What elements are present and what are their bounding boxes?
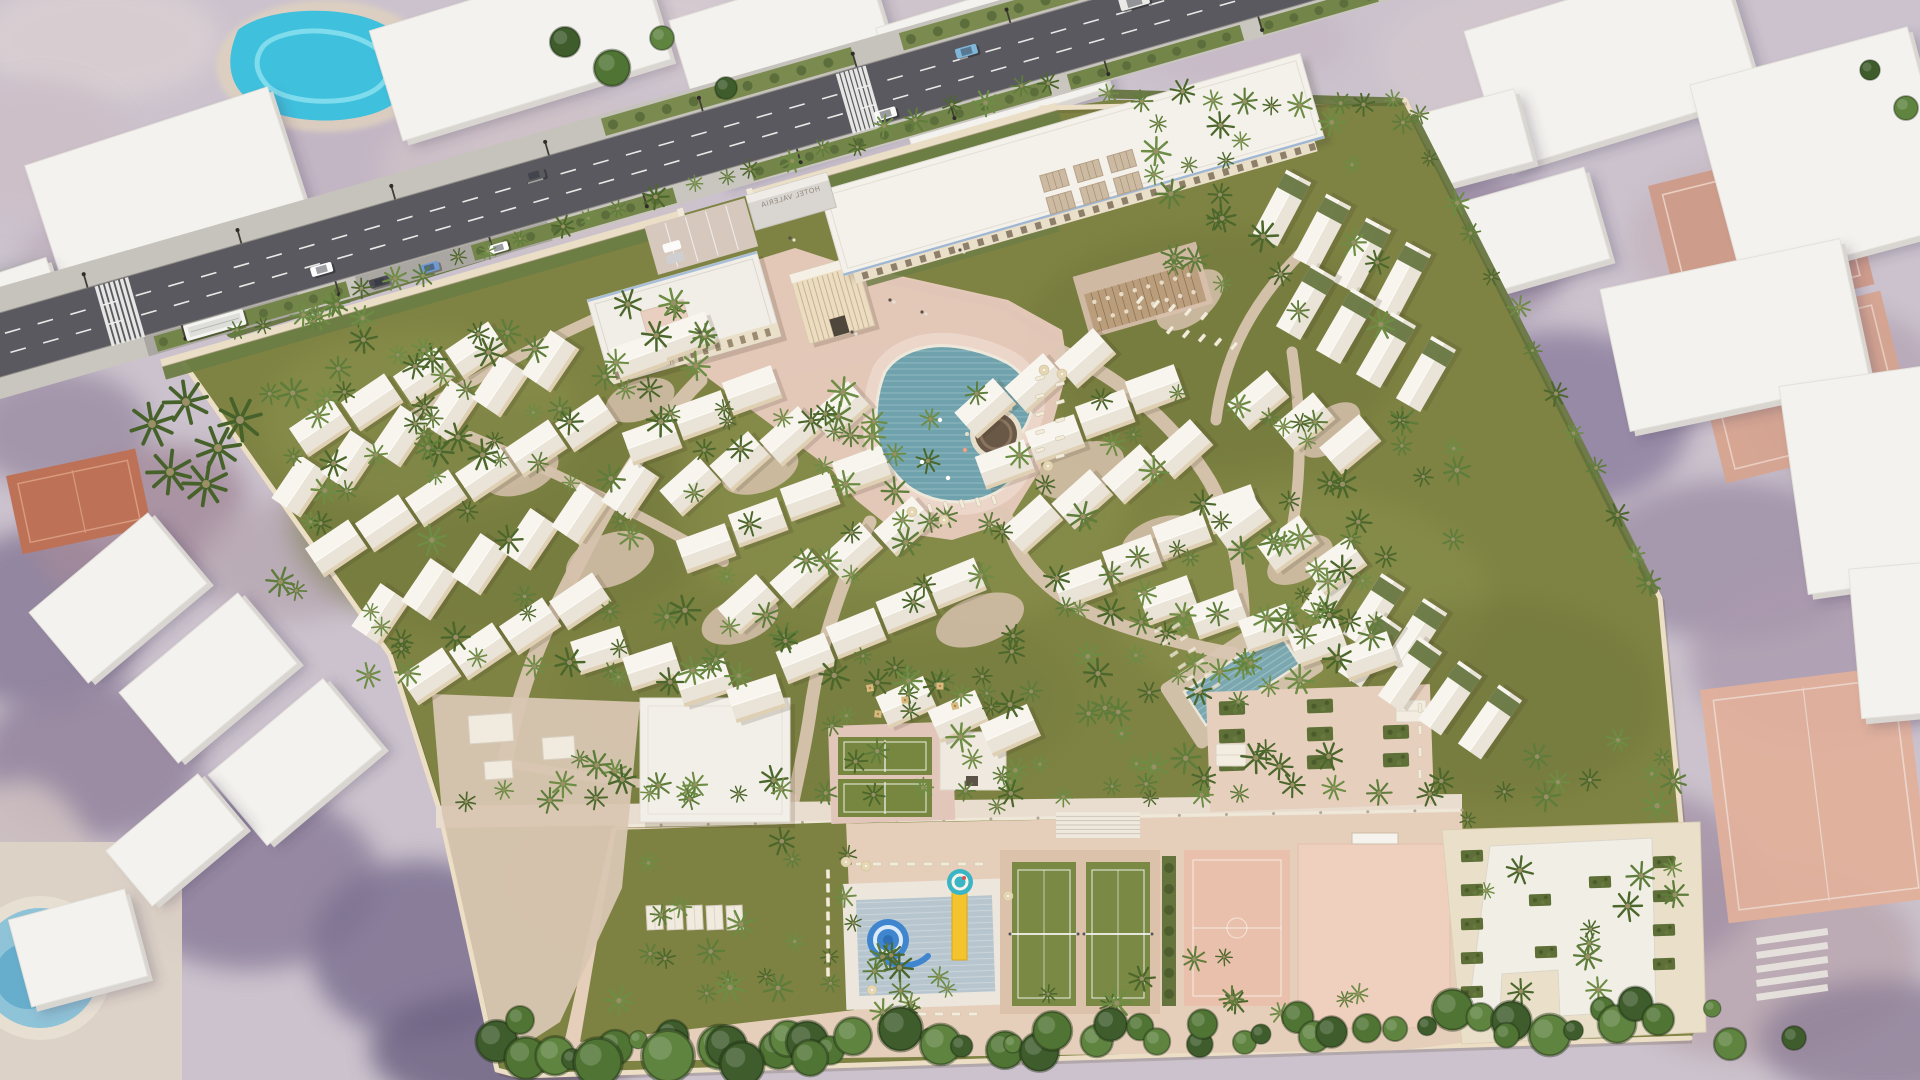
aerial-render-viewport: HOTEL VALERIA: [0, 0, 1920, 1080]
masterplan-scene: HOTEL VALERIA: [0, 0, 1920, 1080]
